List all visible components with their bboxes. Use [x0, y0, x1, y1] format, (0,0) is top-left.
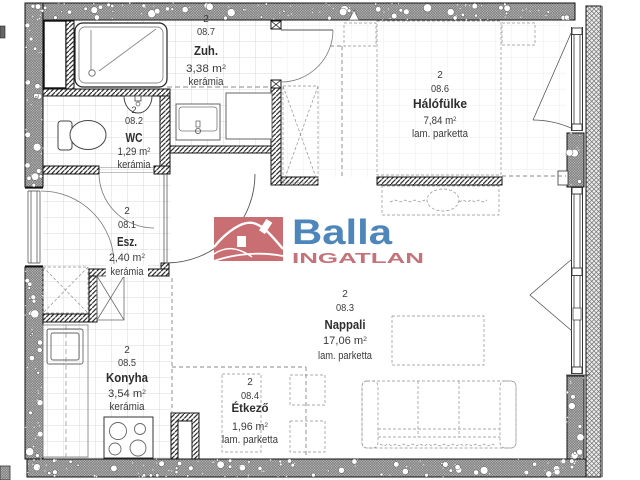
svg-text:2: 2	[131, 105, 136, 115]
svg-text:08.1: 08.1	[118, 220, 136, 231]
svg-text:lam. parketta: lam. parketta	[412, 128, 469, 140]
svg-text:lam. parketta: lam. parketta	[222, 434, 279, 446]
svg-text:2: 2	[124, 345, 130, 356]
svg-text:1,29 m2: 1,29 m2	[118, 146, 151, 158]
svg-text:lam. parketta: lam. parketta	[318, 350, 373, 362]
svg-text:Zuh.: Zuh.	[194, 43, 218, 58]
svg-text:INGATLAN: INGATLAN	[292, 251, 424, 267]
svg-text:2,40 m2: 2,40 m2	[109, 252, 145, 264]
svg-text:08.2: 08.2	[125, 116, 143, 127]
svg-text:08.5: 08.5	[118, 358, 136, 369]
svg-text:kerámia: kerámia	[189, 76, 225, 88]
svg-text:3,38 m2: 3,38 m2	[186, 63, 226, 75]
svg-text:3,54 m2: 3,54 m2	[108, 388, 146, 400]
svg-text:08.3: 08.3	[336, 303, 354, 314]
svg-text:08.6: 08.6	[431, 84, 449, 95]
svg-text:Esz.: Esz.	[117, 234, 137, 249]
svg-text:WC: WC	[126, 130, 143, 145]
svg-text:7,84 m2: 7,84 m2	[424, 115, 457, 127]
svg-text:Nappali: Nappali	[325, 317, 366, 332]
svg-text:2: 2	[342, 289, 348, 300]
svg-text:kerámia: kerámia	[110, 401, 146, 413]
svg-text:Hálófülke: Hálófülke	[413, 96, 467, 111]
svg-text:Étkező: Étkező	[232, 400, 269, 415]
svg-text:08.7: 08.7	[197, 27, 215, 38]
svg-text:Konyha: Konyha	[106, 370, 149, 385]
svg-text:Balla: Balla	[292, 213, 393, 252]
svg-text:kerámia: kerámia	[118, 159, 152, 171]
svg-text:17,06 m2: 17,06 m2	[323, 335, 367, 347]
svg-text:2: 2	[247, 377, 253, 388]
svg-text:kerámia: kerámia	[111, 266, 145, 278]
svg-text:2: 2	[203, 14, 209, 25]
svg-text:2: 2	[437, 70, 443, 81]
svg-text:2: 2	[124, 206, 130, 217]
svg-text:1,96 m2: 1,96 m2	[232, 421, 268, 433]
